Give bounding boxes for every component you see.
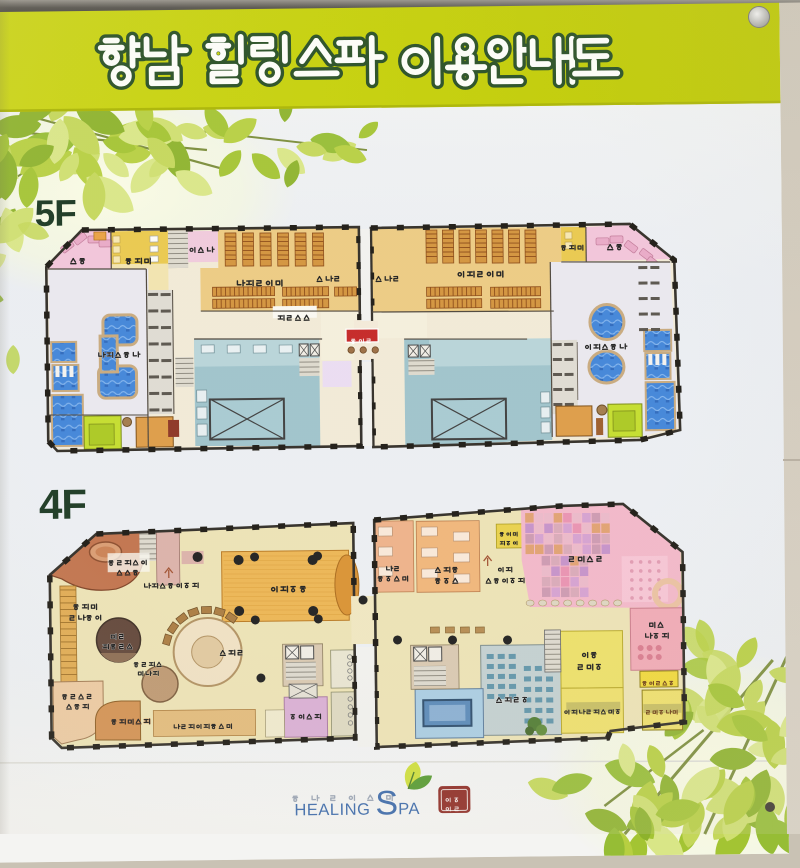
svg-text:5F: 5F — [34, 193, 76, 234]
svg-text:4F: 4F — [39, 480, 87, 528]
